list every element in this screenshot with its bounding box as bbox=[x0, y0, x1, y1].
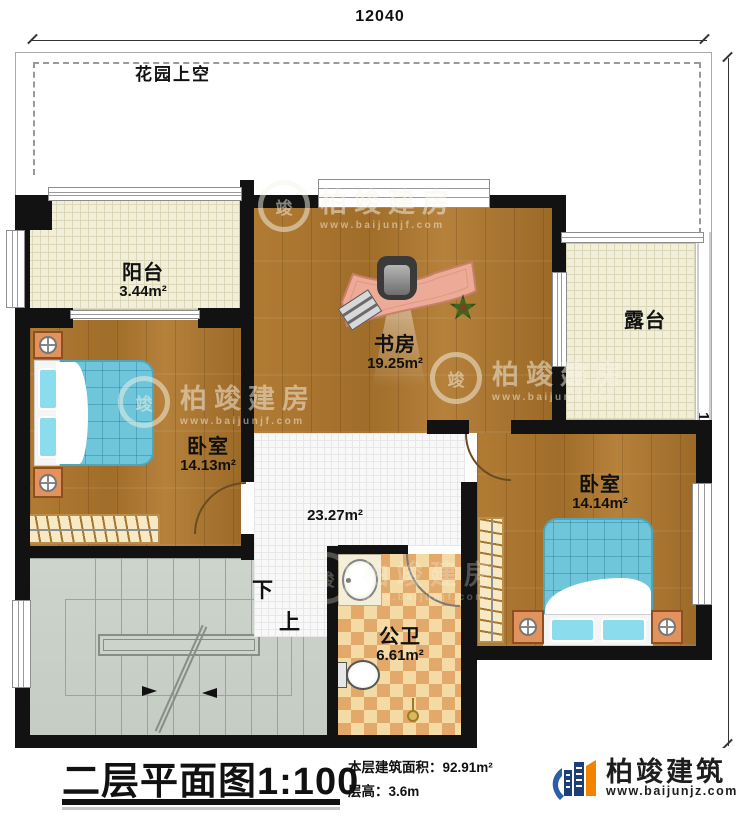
room-area: 3.44m² bbox=[85, 284, 201, 301]
room-name: 书房 bbox=[330, 334, 460, 356]
bed bbox=[543, 518, 653, 648]
room-name: 卧室 bbox=[542, 474, 658, 496]
wall-segment bbox=[327, 546, 338, 737]
wardrobe bbox=[478, 517, 504, 643]
lamp-icon bbox=[519, 618, 537, 636]
faucet-icon bbox=[346, 578, 351, 583]
room-area: 23.27m² bbox=[280, 508, 390, 525]
plan-title-text: 二层平面图 bbox=[62, 761, 257, 803]
wall-segment bbox=[461, 482, 477, 737]
stair-arrow-left bbox=[202, 688, 217, 698]
window bbox=[692, 483, 712, 605]
sink-icon bbox=[342, 559, 378, 601]
terrace-door bbox=[552, 272, 567, 367]
nightstand bbox=[651, 610, 683, 644]
room-label-study: 书房 19.25m² bbox=[330, 334, 460, 373]
garden-dashed-top bbox=[33, 62, 700, 64]
room-name: 公卫 bbox=[352, 626, 448, 648]
chair-seat bbox=[384, 265, 410, 295]
room-label-terrace: 露台 bbox=[598, 310, 692, 332]
room-label-bedroom-right: 卧室 14.14m² bbox=[542, 474, 658, 513]
pillow bbox=[38, 368, 58, 410]
room-area: 14.13m² bbox=[150, 458, 266, 475]
room-label-bedroom-left: 卧室 14.13m² bbox=[150, 436, 266, 475]
garden-dashed-left bbox=[33, 62, 35, 175]
sliding-door bbox=[70, 310, 200, 319]
floor-height-label: 层高： bbox=[348, 784, 389, 799]
window bbox=[561, 232, 704, 243]
nightstand bbox=[33, 331, 63, 359]
floor-height-stat: 层高：3.6m bbox=[348, 780, 419, 800]
wall-segment bbox=[15, 546, 254, 558]
lamp-icon bbox=[658, 618, 676, 636]
title-underline-bold bbox=[62, 799, 340, 805]
stairs-down-label: 下 bbox=[252, 574, 273, 604]
wall-segment bbox=[427, 420, 469, 434]
wall-segment bbox=[511, 420, 542, 434]
dimension-line-top bbox=[30, 40, 707, 41]
floor-area-value: 92.91m² bbox=[443, 760, 493, 775]
room-area: 6.61m² bbox=[352, 648, 448, 665]
stair-railing-inner bbox=[103, 639, 255, 651]
footer: 二层平面图1:100 本层建筑面积：92.91m² 层高：3.6m 柏竣建筑 w… bbox=[0, 748, 750, 817]
bed bbox=[34, 360, 154, 466]
wardrobe-rod bbox=[30, 529, 158, 531]
window bbox=[48, 187, 242, 201]
door-arc bbox=[465, 434, 511, 481]
wall-segment bbox=[240, 180, 254, 320]
window bbox=[6, 230, 25, 308]
garden-outline-top bbox=[15, 52, 712, 53]
bed-sheet bbox=[56, 362, 88, 464]
pillow bbox=[38, 416, 58, 458]
dimension-tick bbox=[27, 34, 38, 45]
room-area: 19.25m² bbox=[330, 356, 460, 373]
floor-drain-icon bbox=[407, 710, 419, 722]
nightstand bbox=[33, 467, 63, 498]
wall-segment bbox=[253, 195, 320, 208]
wardrobe-rod bbox=[491, 519, 493, 641]
brand-logo-icon bbox=[550, 752, 600, 808]
wall-segment bbox=[552, 366, 566, 422]
room-name: 露台 bbox=[598, 310, 692, 332]
window bbox=[318, 179, 490, 208]
room-name: 阳台 bbox=[85, 262, 201, 284]
wall-segment bbox=[540, 420, 710, 434]
lamp-icon bbox=[39, 474, 57, 492]
room-hallway bbox=[254, 433, 465, 546]
pillow bbox=[550, 618, 595, 642]
wall-segment bbox=[463, 646, 712, 660]
lamp-icon bbox=[39, 336, 57, 354]
room-label-bathroom: 公卫 6.61m² bbox=[352, 626, 448, 665]
room-label-hallway: 23.27m² bbox=[280, 508, 390, 525]
plan-title: 二层平面图1:100 bbox=[62, 750, 359, 805]
floor-plan-canvas: 花园上空 12040 12440 bbox=[0, 0, 750, 817]
window bbox=[12, 600, 31, 688]
nightstand bbox=[512, 610, 544, 644]
pillow bbox=[601, 618, 646, 642]
wardrobe bbox=[28, 514, 160, 544]
floor-height-value: 3.6m bbox=[389, 784, 420, 799]
garden-outline-left bbox=[15, 52, 16, 195]
room-area: 14.14m² bbox=[542, 496, 658, 513]
plan-scale: 1:100 bbox=[257, 761, 359, 803]
floor-area-label: 本层建筑面积： bbox=[348, 760, 443, 775]
stairs-up-label: 上 bbox=[279, 606, 300, 636]
stair-railing bbox=[98, 634, 260, 656]
wall-segment bbox=[696, 604, 712, 660]
wall-segment bbox=[338, 545, 408, 554]
brand-url: www.baijunjz.com bbox=[606, 784, 738, 798]
room-label-balcony: 阳台 3.44m² bbox=[85, 262, 201, 301]
title-underline-light bbox=[62, 807, 340, 810]
garden-label: 花园上空 bbox=[135, 60, 211, 85]
stair-arrow-right bbox=[142, 686, 157, 696]
terrace-railing bbox=[697, 232, 711, 422]
wall-segment bbox=[198, 308, 243, 328]
toilet-bowl bbox=[346, 660, 380, 690]
office-chair bbox=[377, 256, 417, 300]
dimension-top-value: 12040 bbox=[330, 8, 430, 26]
toilet-icon bbox=[337, 660, 382, 690]
dimension-line-right bbox=[728, 58, 729, 746]
wall-segment bbox=[696, 420, 712, 484]
garden-dashed-right bbox=[699, 62, 701, 234]
room-name: 卧室 bbox=[150, 436, 266, 458]
wall-segment bbox=[15, 308, 73, 328]
wall-segment bbox=[15, 735, 477, 748]
garden-outline-right bbox=[711, 52, 712, 425]
floor-area-stat: 本层建筑面积：92.91m² bbox=[348, 756, 493, 776]
dimension-tick bbox=[699, 34, 710, 45]
